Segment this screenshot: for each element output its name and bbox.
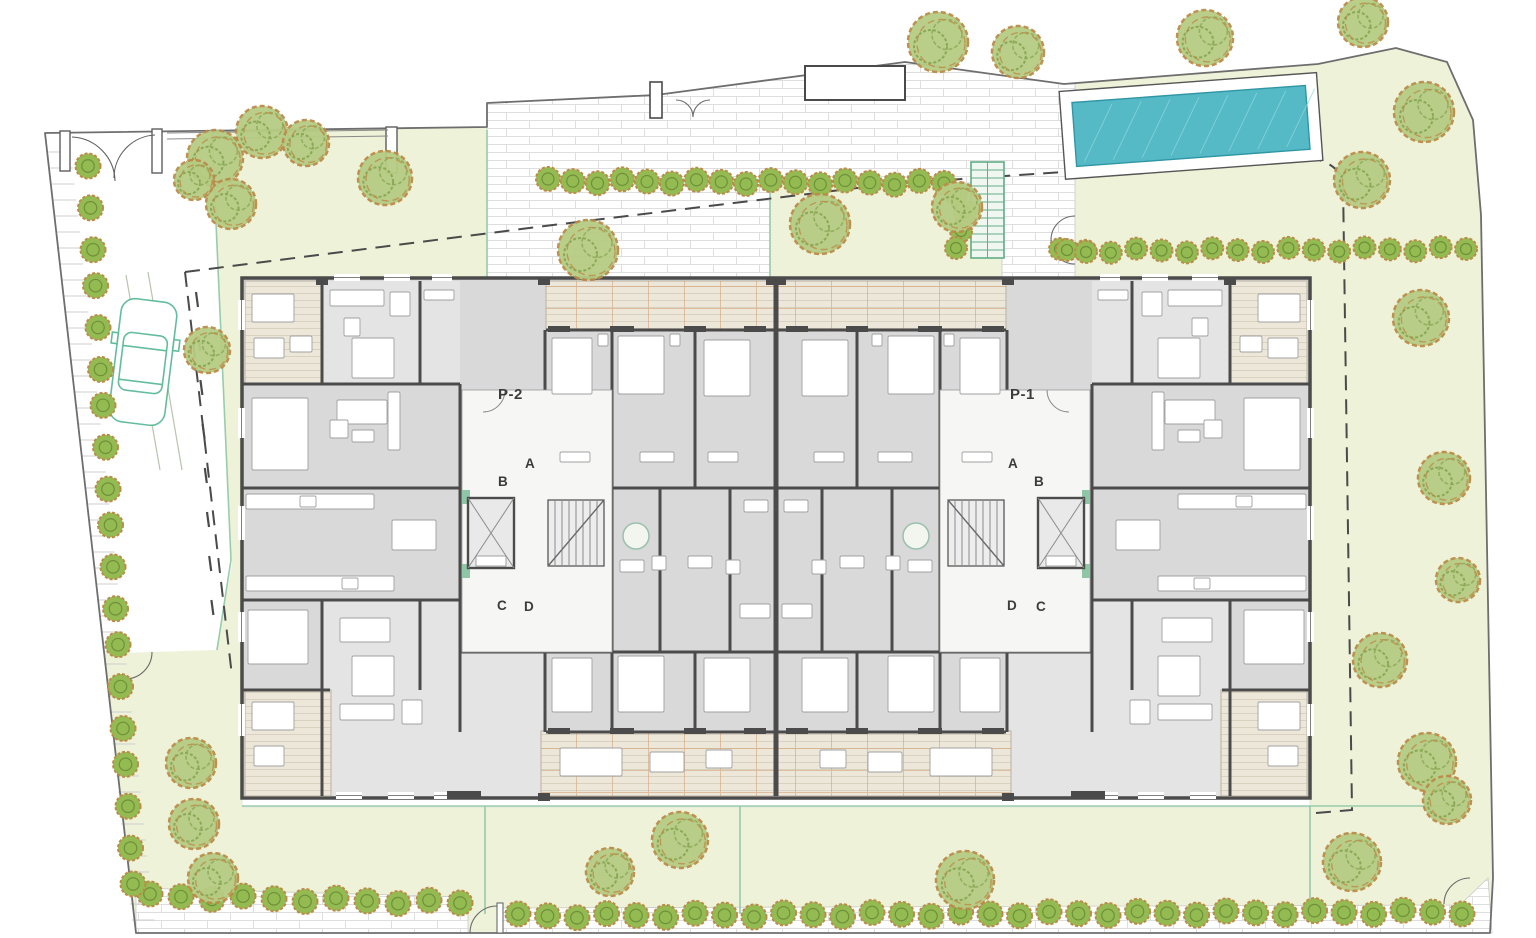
bush-canopy: [91, 393, 116, 418]
furniture: [872, 334, 882, 346]
furniture: [726, 560, 740, 574]
bush-canopy: [561, 169, 585, 193]
bush: [860, 900, 885, 925]
furniture: [1098, 290, 1128, 300]
bush-canopy: [734, 172, 758, 196]
furniture: [1268, 338, 1298, 358]
tree: [992, 26, 1044, 78]
bush-canopy: [417, 888, 442, 913]
bush-canopy: [293, 889, 318, 914]
furniture: [868, 752, 902, 772]
bush-canopy: [1277, 237, 1299, 259]
furniture: [908, 560, 932, 572]
tree: [586, 848, 634, 896]
furniture: [930, 748, 992, 776]
furniture: [962, 452, 992, 462]
tree-canopy: [1323, 833, 1381, 891]
bush: [293, 889, 318, 914]
bush-canopy: [96, 477, 121, 502]
apartment-building: [238, 274, 1314, 801]
bush: [801, 902, 826, 927]
bush-canopy: [1096, 903, 1121, 928]
tree: [1177, 10, 1233, 66]
bush: [742, 905, 767, 930]
bush-canopy: [1037, 899, 1062, 924]
furniture: [1258, 702, 1300, 730]
bush-canopy: [1125, 238, 1147, 260]
bush-canopy: [118, 836, 143, 861]
annex-pier: [650, 82, 662, 118]
furniture: [708, 452, 738, 462]
furniture: [1192, 318, 1208, 336]
furniture: [1162, 618, 1212, 642]
furniture: [598, 334, 608, 346]
furniture: [1152, 392, 1164, 450]
bush-canopy: [1007, 903, 1032, 928]
swimming-pool: [1059, 73, 1323, 180]
wall-pier: [846, 728, 868, 734]
bush: [565, 905, 590, 930]
furniture: [820, 750, 846, 768]
wall-pier: [744, 326, 766, 332]
furniture: [252, 398, 308, 470]
bush-canopy: [386, 891, 411, 916]
furniture: [246, 576, 394, 591]
bush: [808, 172, 832, 196]
furniture: [812, 560, 826, 574]
bush: [1277, 237, 1299, 259]
bush-canopy: [76, 154, 101, 179]
bush-canopy: [833, 169, 857, 193]
bush-canopy: [1155, 901, 1180, 926]
bush-canopy: [889, 902, 914, 927]
furniture: [352, 430, 374, 442]
bush-canopy: [685, 168, 709, 192]
bush-canopy: [1332, 900, 1357, 925]
bush: [653, 905, 678, 930]
furniture: [886, 556, 900, 570]
furniture: [960, 338, 1000, 394]
wall-pier: [1002, 277, 1014, 285]
bush: [1302, 898, 1327, 923]
bush-canopy: [610, 167, 634, 191]
bush: [919, 904, 944, 929]
bush: [1243, 900, 1268, 925]
bush: [1391, 898, 1416, 923]
tree: [236, 106, 288, 158]
elevator-door: [476, 556, 506, 566]
furniture: [340, 618, 390, 642]
furniture: [1158, 704, 1212, 720]
furniture: [300, 496, 316, 507]
wall-pier: [982, 728, 1004, 734]
bush: [1066, 901, 1091, 926]
tree: [1323, 833, 1381, 891]
tree-canopy: [1394, 82, 1454, 142]
bush: [586, 171, 610, 195]
furniture: [1244, 610, 1304, 664]
furniture: [618, 656, 664, 712]
wall-pier: [1071, 791, 1105, 799]
bush: [889, 902, 914, 927]
terrace-deck-grid: [546, 281, 774, 330]
furniture: [352, 656, 394, 696]
furniture: [782, 604, 812, 618]
tree: [1418, 452, 1470, 504]
bush: [771, 900, 796, 925]
bush: [1354, 237, 1376, 259]
bush-canopy: [1404, 240, 1426, 262]
furniture: [1204, 420, 1222, 438]
furniture: [1168, 290, 1222, 306]
wall-pier: [744, 728, 766, 734]
bush: [624, 903, 649, 928]
bush: [945, 237, 967, 259]
gate-pier: [497, 903, 503, 933]
bush-canopy: [1201, 237, 1223, 259]
furniture: [960, 658, 1000, 712]
furniture: [248, 610, 308, 664]
bush-canopy: [98, 513, 123, 538]
bush-canopy: [1125, 899, 1150, 924]
wall-pier: [548, 326, 570, 332]
furniture: [560, 452, 590, 462]
furniture: [290, 336, 312, 352]
label-core-p1: P-1: [1010, 386, 1035, 403]
bush-canopy: [86, 315, 111, 340]
bush-canopy: [683, 901, 708, 926]
furniture: [1240, 336, 1262, 352]
furniture: [878, 452, 912, 462]
bush: [116, 794, 141, 819]
label-door-d-left: D: [524, 599, 534, 614]
bush-canopy: [1252, 241, 1274, 263]
bush: [96, 477, 121, 502]
bush: [907, 169, 931, 193]
furniture: [552, 338, 592, 394]
bush-canopy: [742, 905, 767, 930]
bush: [1151, 240, 1173, 262]
bush-canopy: [883, 173, 907, 197]
bush-canopy: [113, 752, 138, 777]
furniture: [344, 318, 360, 336]
light-well: [903, 523, 929, 549]
bush: [1214, 899, 1239, 924]
bush: [858, 171, 882, 195]
bush: [683, 901, 708, 926]
bush-canopy: [1455, 238, 1477, 260]
bush-canopy: [624, 903, 649, 928]
furniture: [330, 290, 384, 306]
bush-canopy: [660, 172, 684, 196]
bush: [635, 170, 659, 194]
tree-canopy: [558, 220, 618, 280]
car-mirror: [111, 332, 118, 344]
tree: [1394, 82, 1454, 142]
bush: [1361, 902, 1386, 927]
bush-canopy: [1420, 900, 1445, 925]
wall-pier: [1224, 277, 1236, 285]
bush-canopy: [93, 435, 118, 460]
bush: [106, 632, 131, 657]
bush: [1455, 238, 1477, 260]
bush: [734, 172, 758, 196]
bush-canopy: [506, 902, 531, 927]
bush: [709, 170, 733, 194]
wall-pier: [684, 326, 706, 332]
furniture: [704, 658, 750, 712]
bush: [355, 888, 380, 913]
bush-canopy: [78, 195, 103, 220]
bush: [1125, 238, 1147, 260]
bush-canopy: [1100, 242, 1122, 264]
bush: [86, 315, 111, 340]
furniture: [424, 290, 454, 300]
bush: [830, 904, 855, 929]
furniture: [652, 556, 666, 570]
label-door-b-right: B: [1034, 474, 1044, 489]
bush: [88, 357, 113, 382]
furniture: [744, 500, 768, 512]
furniture: [840, 556, 864, 568]
furniture: [814, 452, 844, 462]
wall-pier: [1002, 793, 1014, 801]
bush-canopy: [448, 891, 473, 916]
bush: [594, 901, 619, 926]
bush: [1176, 241, 1198, 263]
furniture: [706, 750, 732, 768]
bush: [759, 168, 783, 192]
furniture: [1194, 578, 1210, 589]
bush-canopy: [81, 237, 106, 262]
wall-pier: [548, 728, 570, 734]
bush: [417, 888, 442, 913]
tree: [652, 812, 708, 868]
bush-canopy: [121, 872, 146, 897]
bush: [1007, 903, 1032, 928]
furniture: [1268, 746, 1298, 766]
furniture: [640, 452, 674, 462]
bush: [1227, 239, 1249, 261]
label-door-c-left: C: [497, 598, 507, 613]
bush: [98, 513, 123, 538]
wall-pier: [982, 326, 1004, 332]
elevator-door: [1046, 556, 1076, 566]
furniture: [1158, 576, 1306, 591]
bush-canopy: [1066, 901, 1091, 926]
bush: [111, 716, 136, 741]
furniture: [252, 702, 294, 730]
wall-pier: [610, 326, 634, 332]
wall-pier: [786, 326, 808, 332]
tree: [166, 738, 216, 788]
bush: [83, 273, 108, 298]
bush: [1430, 236, 1452, 258]
bush-canopy: [1450, 902, 1475, 927]
tree-canopy: [908, 12, 968, 72]
bush-canopy: [907, 169, 931, 193]
tree: [1436, 558, 1480, 602]
furniture: [888, 336, 934, 394]
bush: [262, 886, 287, 911]
bush: [1252, 241, 1274, 263]
wall-pier: [846, 326, 868, 332]
bush: [1379, 238, 1401, 260]
bush-canopy: [1391, 898, 1416, 923]
furniture: [254, 746, 284, 766]
furniture: [1258, 294, 1300, 322]
bush-canopy: [1243, 900, 1268, 925]
bush: [535, 903, 560, 928]
wall-pier: [316, 277, 328, 285]
bush-canopy: [919, 904, 944, 929]
furniture: [620, 560, 644, 572]
bush-canopy: [1361, 902, 1386, 927]
bush: [1420, 900, 1445, 925]
bush-canopy: [535, 903, 560, 928]
bush: [113, 752, 138, 777]
bush: [610, 167, 634, 191]
bush: [1201, 237, 1223, 259]
bush-canopy: [1302, 898, 1327, 923]
furniture: [402, 700, 422, 724]
bush: [93, 435, 118, 460]
furniture: [1178, 430, 1200, 442]
car-mirror: [173, 340, 180, 352]
bush: [685, 168, 709, 192]
bush: [448, 891, 473, 916]
furniture: [670, 334, 680, 346]
tree: [1353, 633, 1407, 687]
bush: [712, 903, 737, 928]
bush-canopy: [945, 237, 967, 259]
furniture: [252, 294, 294, 322]
light-well: [623, 523, 649, 549]
furniture: [688, 556, 712, 568]
label-door-d-right: D: [1007, 598, 1017, 613]
bush: [103, 596, 128, 621]
bush: [883, 173, 907, 197]
tree: [188, 853, 238, 903]
bush-canopy: [771, 900, 796, 925]
tree: [206, 179, 256, 229]
bush-canopy: [1176, 241, 1198, 263]
wall-pier: [447, 791, 481, 799]
bush: [1332, 900, 1357, 925]
furniture: [888, 656, 934, 712]
bush-canopy: [801, 902, 826, 927]
wall-pier: [538, 793, 550, 801]
bush-canopy: [101, 554, 126, 579]
bush-canopy: [860, 900, 885, 925]
bush: [1037, 899, 1062, 924]
tree: [184, 327, 230, 373]
wall-pier: [610, 728, 634, 734]
bush: [536, 167, 560, 191]
furniture: [618, 336, 664, 394]
bush-canopy: [858, 171, 882, 195]
furniture: [1236, 496, 1252, 507]
tree-canopy: [936, 851, 994, 909]
bush-canopy: [1354, 237, 1376, 259]
tree: [936, 851, 994, 909]
bush-canopy: [1430, 236, 1452, 258]
bush: [1273, 902, 1298, 927]
bush: [1450, 902, 1475, 927]
bush-canopy: [106, 632, 131, 657]
bush-canopy: [709, 170, 733, 194]
furniture: [802, 658, 848, 712]
tree: [932, 182, 982, 232]
bush-canopy: [262, 886, 287, 911]
furniture: [1158, 338, 1200, 378]
bush: [784, 170, 808, 194]
furniture: [1130, 700, 1150, 724]
wall-pier: [786, 728, 808, 734]
terrace-deck-grid: [778, 281, 1006, 330]
bush-canopy: [635, 170, 659, 194]
bush: [1096, 903, 1121, 928]
furniture: [388, 392, 400, 450]
bush: [561, 169, 585, 193]
bush: [76, 154, 101, 179]
tree: [790, 194, 850, 254]
furniture: [340, 704, 394, 720]
furniture: [1158, 656, 1200, 696]
furniture: [390, 292, 410, 316]
bush: [1328, 241, 1350, 263]
furniture: [342, 578, 358, 589]
bush: [81, 237, 106, 262]
bush: [108, 674, 133, 699]
tree: [1423, 776, 1471, 824]
bush-canopy: [111, 716, 136, 741]
tree: [169, 799, 219, 849]
furniture: [650, 752, 684, 772]
bush-canopy: [88, 357, 113, 382]
bush: [1075, 241, 1097, 263]
bush-canopy: [594, 901, 619, 926]
label-door-c-right: C: [1036, 599, 1046, 614]
tree-canopy: [790, 194, 850, 254]
wall-pier: [684, 728, 706, 734]
bush: [118, 836, 143, 861]
bush: [91, 393, 116, 418]
bush: [1303, 239, 1325, 261]
bush-canopy: [1303, 239, 1325, 261]
tree: [283, 120, 329, 166]
furniture: [704, 340, 750, 396]
bush: [324, 886, 349, 911]
tree: [358, 151, 412, 205]
furniture: [352, 338, 394, 378]
bush: [660, 172, 684, 196]
bush: [1404, 240, 1426, 262]
furniture: [560, 748, 622, 776]
bush-canopy: [1075, 241, 1097, 263]
bush-canopy: [1379, 238, 1401, 260]
tree: [558, 220, 618, 280]
furniture: [784, 500, 808, 512]
site-plan-canvas: P-2 P-1 A B C D A B D C: [0, 0, 1536, 938]
bush-canopy: [830, 904, 855, 929]
bush: [1100, 242, 1122, 264]
tree: [1393, 290, 1449, 346]
bush-canopy: [1328, 241, 1350, 263]
bush: [506, 902, 531, 927]
furniture: [1116, 520, 1160, 550]
furniture: [944, 334, 954, 346]
